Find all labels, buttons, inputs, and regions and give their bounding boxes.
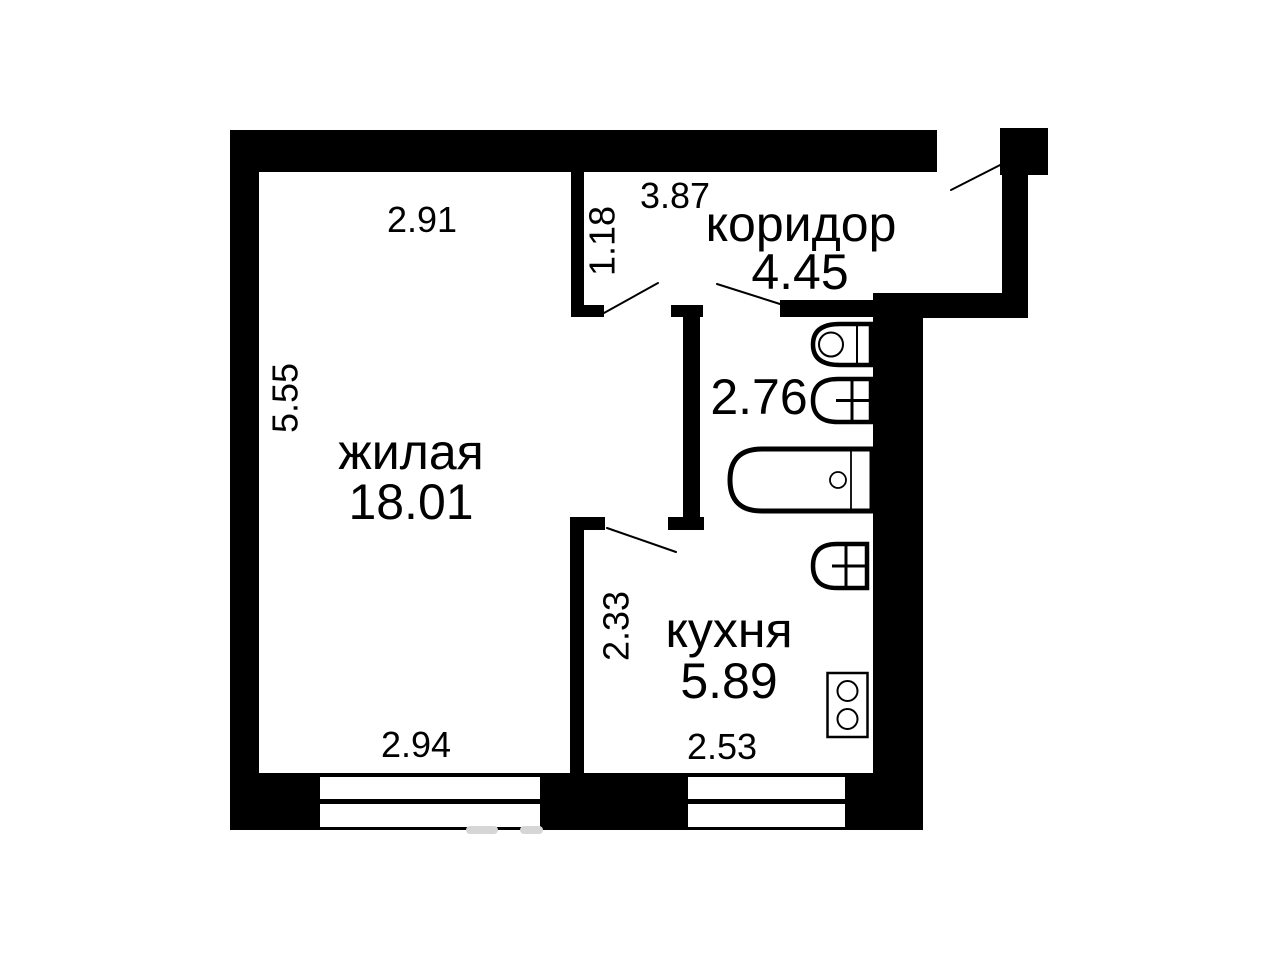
living-window bbox=[320, 777, 540, 827]
wall-living-corridor-stub bbox=[571, 305, 604, 317]
sink-icon bbox=[813, 379, 871, 422]
dim-corridor-left: 1.18 bbox=[582, 206, 623, 276]
dim-living-top: 2.91 bbox=[387, 199, 457, 240]
entry-door-leaf bbox=[951, 162, 1006, 190]
living-window-mullion bbox=[320, 799, 540, 804]
wall-bathroom-top bbox=[780, 300, 877, 317]
kitchen-window bbox=[688, 777, 845, 827]
stove-icon bbox=[828, 673, 868, 737]
wall-kitchen-left bbox=[570, 517, 584, 773]
wall-bathroom-cap-top bbox=[671, 305, 703, 317]
label-kitchen: кухня bbox=[665, 602, 792, 658]
area-living: 18.01 bbox=[348, 474, 473, 530]
kitchen-window-mullion bbox=[688, 799, 845, 804]
dim-corridor-top: 3.87 bbox=[640, 175, 710, 216]
dim-living-bottom: 2.94 bbox=[381, 724, 451, 765]
kitchen-door-leaf bbox=[607, 528, 676, 552]
wall-entry-block bbox=[1000, 128, 1048, 175]
wall-kitchen-stub bbox=[570, 517, 605, 530]
toilet-icon bbox=[813, 324, 871, 365]
bathtub-icon bbox=[730, 449, 872, 511]
wall-bathroom-cap-bottom bbox=[668, 517, 704, 530]
wall-bathroom-left bbox=[683, 315, 700, 518]
living-door-leaf bbox=[604, 283, 658, 313]
kitchen-sink-icon bbox=[813, 544, 867, 588]
floor-plan: 2.91 5.55 жилая 18.01 2.94 3.87 1.18 кор… bbox=[0, 0, 1280, 961]
label-living: жилая bbox=[338, 424, 483, 480]
dim-kitchen-left: 2.33 bbox=[596, 591, 637, 661]
area-bathroom: 2.76 bbox=[710, 369, 807, 425]
wall-right-thick bbox=[873, 300, 923, 830]
dim-living-left: 5.55 bbox=[265, 363, 306, 433]
dim-kitchen-bottom: 2.53 bbox=[687, 726, 757, 767]
wall-top bbox=[230, 130, 937, 172]
area-corridor: 4.45 bbox=[751, 244, 848, 300]
wall-left bbox=[230, 130, 259, 830]
area-kitchen: 5.89 bbox=[680, 653, 777, 709]
floor-plan-drawing: 2.91 5.55 жилая 18.01 2.94 3.87 1.18 кор… bbox=[0, 0, 1280, 961]
